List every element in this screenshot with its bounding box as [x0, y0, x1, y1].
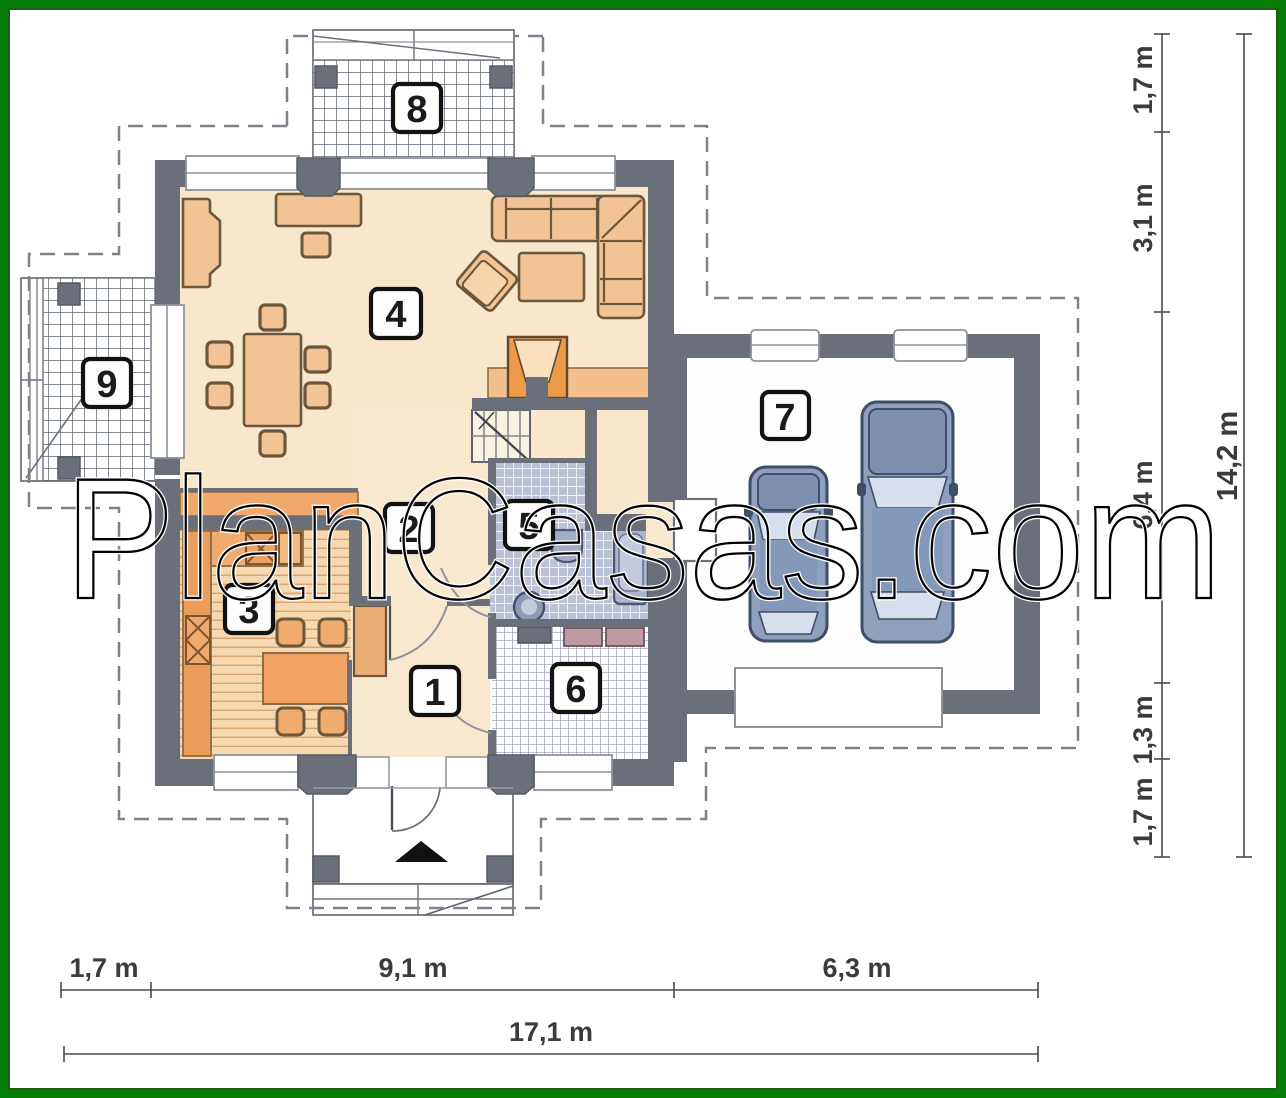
svg-text:7: 7: [774, 397, 795, 439]
svg-text:3,1 m: 3,1 m: [1128, 183, 1158, 252]
svg-text:PlanCasas.com: PlanCasas.com: [64, 443, 1221, 635]
svg-text:17,1 m: 17,1 m: [509, 1017, 593, 1047]
svg-text:4: 4: [385, 294, 406, 336]
svg-text:6,3 m: 6,3 m: [822, 953, 891, 983]
svg-text:1,7 m: 1,7 m: [69, 953, 138, 983]
svg-text:9,1 m: 9,1 m: [378, 953, 447, 983]
svg-text:1,3 m: 1,3 m: [1128, 695, 1158, 764]
svg-text:1: 1: [424, 672, 445, 714]
svg-text:1,7 m: 1,7 m: [1128, 45, 1158, 114]
svg-text:8: 8: [406, 89, 427, 131]
svg-text:9: 9: [96, 364, 117, 406]
svg-text:6: 6: [565, 669, 586, 711]
svg-text:1,7 m: 1,7 m: [1128, 777, 1158, 846]
